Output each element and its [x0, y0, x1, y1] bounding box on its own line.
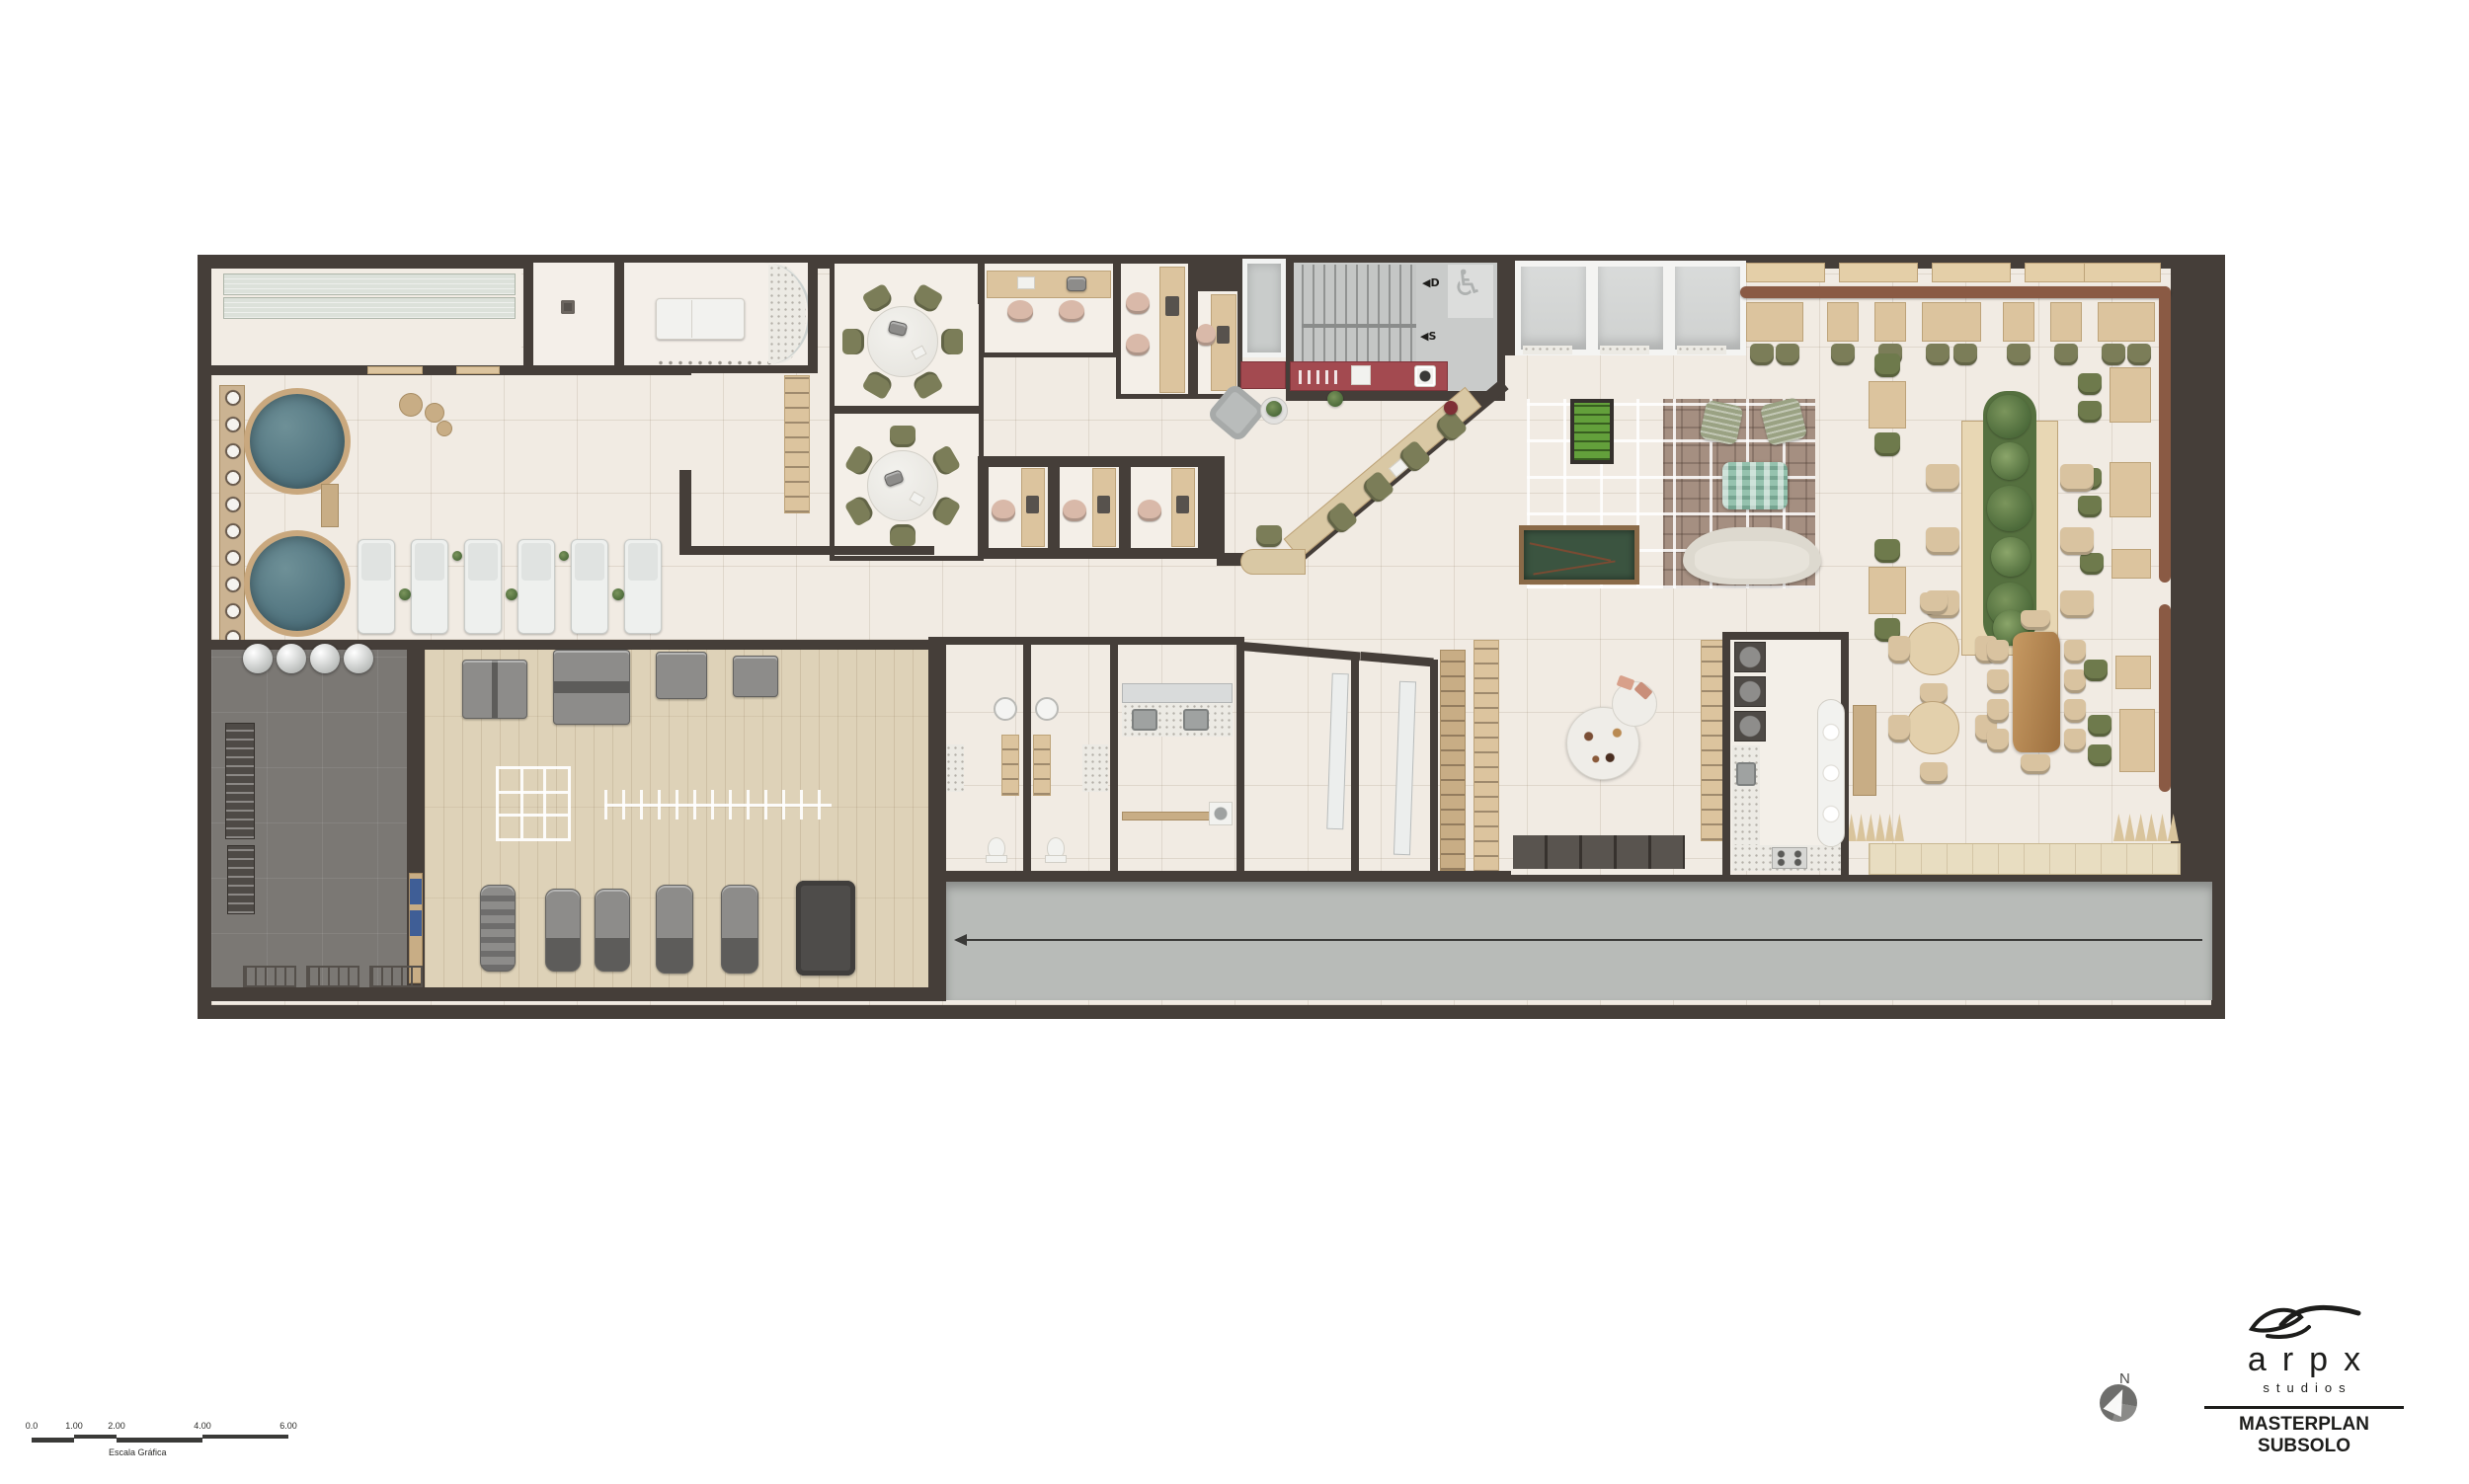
sauna-bench-lower	[223, 297, 516, 319]
meeting-table-round	[867, 450, 938, 521]
massage-wall-bottom	[624, 365, 818, 373]
mirror	[1122, 683, 1233, 703]
cafe-chair	[1831, 344, 1855, 365]
dining-chair	[2088, 715, 2111, 737]
stair-up-label: ◀S	[1420, 330, 1436, 343]
brand-name: arpx	[2200, 1341, 2408, 1379]
table-chair	[2060, 590, 2094, 618]
door-threshold	[456, 366, 500, 374]
corridor-bench	[1869, 843, 2181, 875]
dining-chair	[1888, 636, 1910, 664]
north-arrow-icon	[2100, 1384, 2137, 1422]
wall-bars	[369, 966, 423, 987]
counter-sink	[1183, 709, 1209, 731]
two-top-table	[1869, 567, 1906, 614]
table-chair	[1926, 464, 1959, 492]
scale-tick-label: 6.00	[279, 1421, 297, 1431]
dining-chair	[2021, 610, 2050, 630]
curved-sofa-seat	[1695, 541, 1809, 579]
elevator-shaft	[1669, 261, 1746, 355]
exercise-ball	[310, 644, 340, 673]
gym-east-wall	[928, 645, 946, 1000]
counter-sink	[1132, 709, 1157, 731]
decoration	[575, 543, 604, 581]
elevator-shaft	[1592, 261, 1669, 355]
shower-room	[533, 263, 614, 365]
decoration	[890, 524, 916, 546]
scale-tick-label: 2.00	[108, 1421, 125, 1431]
cafe-table	[1922, 302, 1981, 342]
wall-table	[1932, 263, 2011, 282]
storage-shelf	[784, 375, 810, 513]
scale-segment	[32, 1439, 74, 1443]
shower-pad	[1082, 744, 1108, 792]
dumbbell-rack	[225, 723, 255, 839]
monitor	[1165, 296, 1179, 316]
spa-lounger	[411, 539, 448, 634]
table-chair	[2060, 527, 2094, 555]
kettlebell-rack	[227, 845, 255, 914]
wall-table	[1839, 263, 1918, 282]
cafe-chair	[2007, 344, 2031, 365]
cafe-chair	[1874, 353, 1900, 377]
elevator-sill	[1600, 346, 1649, 354]
wall-table	[2084, 263, 2161, 282]
drive-direction-line	[966, 939, 2202, 941]
logo-block: arpx studios MASTERPLAN SUBSOLO	[2200, 1293, 2408, 1442]
right-service-wall	[2171, 255, 2225, 881]
agility-ladder	[604, 790, 832, 820]
cafe-chair	[1874, 432, 1900, 456]
dining-chair	[1987, 640, 2009, 664]
cafe-table	[2110, 367, 2151, 423]
plant	[506, 588, 518, 600]
cooktop	[1772, 847, 1807, 869]
changing-wall	[928, 637, 1244, 645]
treadmill	[796, 881, 855, 976]
cardio-machine	[480, 885, 516, 972]
spa-lounger	[624, 539, 662, 634]
left-arrow-icon	[954, 934, 967, 946]
plant	[1987, 486, 2032, 531]
desk-chair	[1126, 334, 1150, 355]
elevator-sill	[1523, 346, 1572, 354]
dining-chair	[2064, 669, 2086, 693]
market-shelf	[1473, 640, 1499, 873]
decoration	[628, 543, 658, 581]
locker-shelf	[1033, 735, 1051, 796]
cardio-machine	[656, 885, 693, 974]
table-chair	[2060, 464, 2094, 492]
picture-frame	[1351, 365, 1371, 385]
plant	[1987, 395, 2031, 438]
toilet-tank	[986, 855, 1007, 863]
record-player	[1414, 365, 1436, 387]
decoration	[521, 543, 551, 581]
desk-chair	[1138, 500, 1161, 521]
cafe-chair	[1776, 344, 1799, 365]
plant	[399, 588, 411, 600]
cafe-table	[1827, 302, 1859, 342]
scale-tick-label: 0.0	[26, 1421, 39, 1431]
exercise-ball	[344, 644, 373, 673]
scale-segment	[74, 1435, 117, 1439]
pendant-lamp	[1444, 401, 1458, 415]
gym-access-wall	[679, 546, 934, 555]
washbasin	[1035, 697, 1059, 721]
shower-wall-right	[614, 259, 624, 373]
kitchen-sink	[1736, 762, 1756, 786]
cardio-machine	[545, 889, 581, 972]
cable-station	[553, 650, 630, 725]
desk-chair	[1196, 324, 1216, 346]
massage-wall-right	[808, 259, 818, 373]
round-dining-table	[1906, 622, 1959, 675]
exercise-ball	[277, 644, 306, 673]
stock-pot	[1734, 676, 1766, 707]
scale-tick-label: 4.00	[194, 1421, 211, 1431]
cafe-chair	[2078, 401, 2102, 423]
storage-wall	[1351, 654, 1359, 871]
office-desk	[987, 271, 1111, 298]
monitor	[1176, 496, 1189, 513]
decoration	[468, 543, 498, 581]
storage-wall	[1430, 660, 1438, 871]
cafe-chair	[1953, 344, 1977, 365]
floor-marking-grid	[496, 766, 571, 841]
elevator-sill	[1677, 346, 1726, 354]
cafe-chair	[2078, 373, 2102, 395]
massage-bed-pillow-line	[691, 300, 692, 338]
scale-segment	[202, 1435, 288, 1439]
spa-lounger	[464, 539, 502, 634]
plant	[1266, 401, 1282, 417]
dining-chair	[1987, 669, 2009, 693]
live-edge-table	[2013, 632, 2060, 752]
cafe-chair	[1874, 539, 1900, 563]
desk-chair	[992, 500, 1015, 521]
banquette-bench-vertical	[2159, 286, 2171, 583]
wave-logo-icon	[2248, 1299, 2364, 1339]
drawing-sheet: ◀D ◀S ♿	[0, 0, 2469, 1484]
table-chair	[1926, 527, 1959, 555]
decoration	[2104, 1385, 2132, 1417]
cafe-table	[2050, 302, 2082, 342]
changing-wall	[1236, 637, 1244, 871]
desk-chair	[1126, 292, 1150, 314]
desk-chair	[1007, 300, 1033, 322]
brand-subname: studios	[2200, 1380, 2408, 1395]
servery-counter	[1853, 705, 1876, 796]
banquette-table	[2115, 656, 2151, 689]
bench-press	[656, 652, 707, 699]
open-book	[1017, 276, 1035, 289]
dining-chair	[1920, 762, 1948, 784]
plant	[1327, 391, 1343, 407]
spa-east-wall	[679, 470, 691, 555]
massage-bed	[656, 298, 745, 340]
towel-shelf	[219, 385, 245, 644]
monitor	[1026, 496, 1039, 513]
stair-down-label: ◀D	[1422, 276, 1440, 289]
dining-chair	[1888, 715, 1910, 742]
side-stool	[437, 421, 452, 436]
monitor	[1097, 496, 1110, 513]
washbasin	[994, 697, 1017, 721]
foosball-table	[1570, 399, 1614, 464]
market-shelf	[1440, 650, 1466, 871]
spa-lounger	[358, 539, 395, 634]
glass-meeting-pod	[1242, 259, 1286, 357]
lounge-chair	[1699, 399, 1743, 445]
wall-bars	[306, 966, 359, 987]
exercise-ball	[243, 644, 273, 673]
weight-machine	[462, 660, 527, 719]
coworking-desk-end	[1240, 549, 1306, 575]
barbell-rack	[733, 656, 778, 697]
dining-chair	[1920, 592, 1948, 614]
elevator-shaft	[1515, 261, 1592, 355]
stair-handrail	[1302, 324, 1416, 328]
dining-chair	[2064, 640, 2086, 664]
dining-chair	[1987, 699, 2009, 723]
plant	[559, 551, 569, 561]
floor-drain	[561, 300, 575, 314]
decoration	[890, 426, 916, 447]
cafe-table	[1746, 302, 1803, 342]
cafe-chair	[1750, 344, 1774, 365]
stock-pot	[1734, 711, 1766, 742]
plunge-pool-1	[244, 388, 351, 495]
banquette-bench-vertical	[2159, 604, 2171, 792]
cafe-chair	[2080, 553, 2104, 575]
wall-table	[1746, 263, 1825, 282]
dining-chair	[2084, 660, 2108, 681]
locker-shelf	[1001, 735, 1019, 796]
round-dining-table	[1906, 701, 1959, 754]
toilet-tank	[1045, 855, 1067, 863]
gym-bottom-wall	[211, 987, 946, 1001]
cafe-table	[1874, 302, 1906, 342]
decoration	[415, 543, 444, 581]
decoration	[941, 329, 963, 354]
plant	[1991, 442, 2029, 480]
side-stool	[425, 403, 444, 423]
locker-row	[1513, 835, 1685, 869]
cardio-machine	[721, 885, 758, 974]
scale-segment	[117, 1439, 202, 1443]
sauna-wall-right	[523, 259, 533, 373]
desk-chair	[1063, 500, 1086, 521]
plant	[452, 551, 462, 561]
red-sideboard	[1240, 361, 1286, 389]
cardio-machine	[595, 889, 630, 972]
plunge-pool-2	[244, 530, 351, 637]
cafe-chair	[2102, 344, 2125, 365]
yoga-mats	[410, 910, 422, 936]
wheelchair-icon: ♿	[1452, 267, 1483, 302]
stock-pot	[1734, 642, 1766, 672]
spa-lounger	[571, 539, 608, 634]
dining-chair	[2021, 754, 2050, 774]
plant	[1991, 537, 2031, 577]
booth-desk	[1159, 267, 1185, 393]
plant	[612, 588, 624, 600]
kitchen-wall	[1722, 632, 1849, 640]
washer	[1209, 802, 1233, 825]
decoration	[842, 329, 864, 354]
cafe-table	[2098, 302, 2155, 342]
pool-bench	[321, 484, 339, 527]
side-stool	[399, 393, 423, 417]
dining-chair	[1987, 729, 2009, 752]
cafe-chair	[1926, 344, 1950, 365]
wall-bars	[243, 966, 296, 987]
decoration	[361, 543, 391, 581]
door-threshold	[367, 366, 423, 374]
two-top-table	[1869, 381, 1906, 429]
sauna-bench-upper	[223, 273, 516, 295]
kitchen-wall	[1722, 632, 1730, 879]
drive-aisle	[946, 882, 2212, 1000]
title-divider	[2204, 1406, 2404, 1409]
cafe-chair	[2054, 344, 2078, 365]
spa-lounger	[518, 539, 555, 634]
patterned-pouf	[1722, 462, 1788, 509]
scale-tick-label: 1.00	[65, 1421, 83, 1431]
cafe-table	[2110, 462, 2151, 517]
dining-chair	[2088, 744, 2111, 766]
dining-chair	[2064, 699, 2086, 723]
corridor-top-wall	[946, 875, 2212, 882]
yoga-mats	[410, 879, 422, 904]
changing-wall	[1110, 637, 1118, 871]
scale-caption: Escala Gráfica	[109, 1447, 167, 1457]
monitor	[1217, 326, 1230, 344]
changing-wall	[1023, 642, 1031, 871]
cafe-table	[2111, 549, 2151, 579]
desk-chair	[1256, 525, 1282, 547]
cafe-chair	[2127, 344, 2151, 365]
cafe-table	[2003, 302, 2034, 342]
meeting-table-round	[867, 306, 938, 377]
laptop	[1067, 276, 1086, 291]
desk-chair	[1059, 300, 1084, 322]
cafe-chair	[2078, 496, 2102, 517]
banquette-table	[2119, 709, 2155, 772]
kitchen-island	[1817, 699, 1845, 847]
dining-chair	[2064, 729, 2086, 752]
banquette-bench	[1740, 286, 2171, 298]
sheet-title: MASTERPLAN SUBSOLO	[2200, 1414, 2408, 1457]
